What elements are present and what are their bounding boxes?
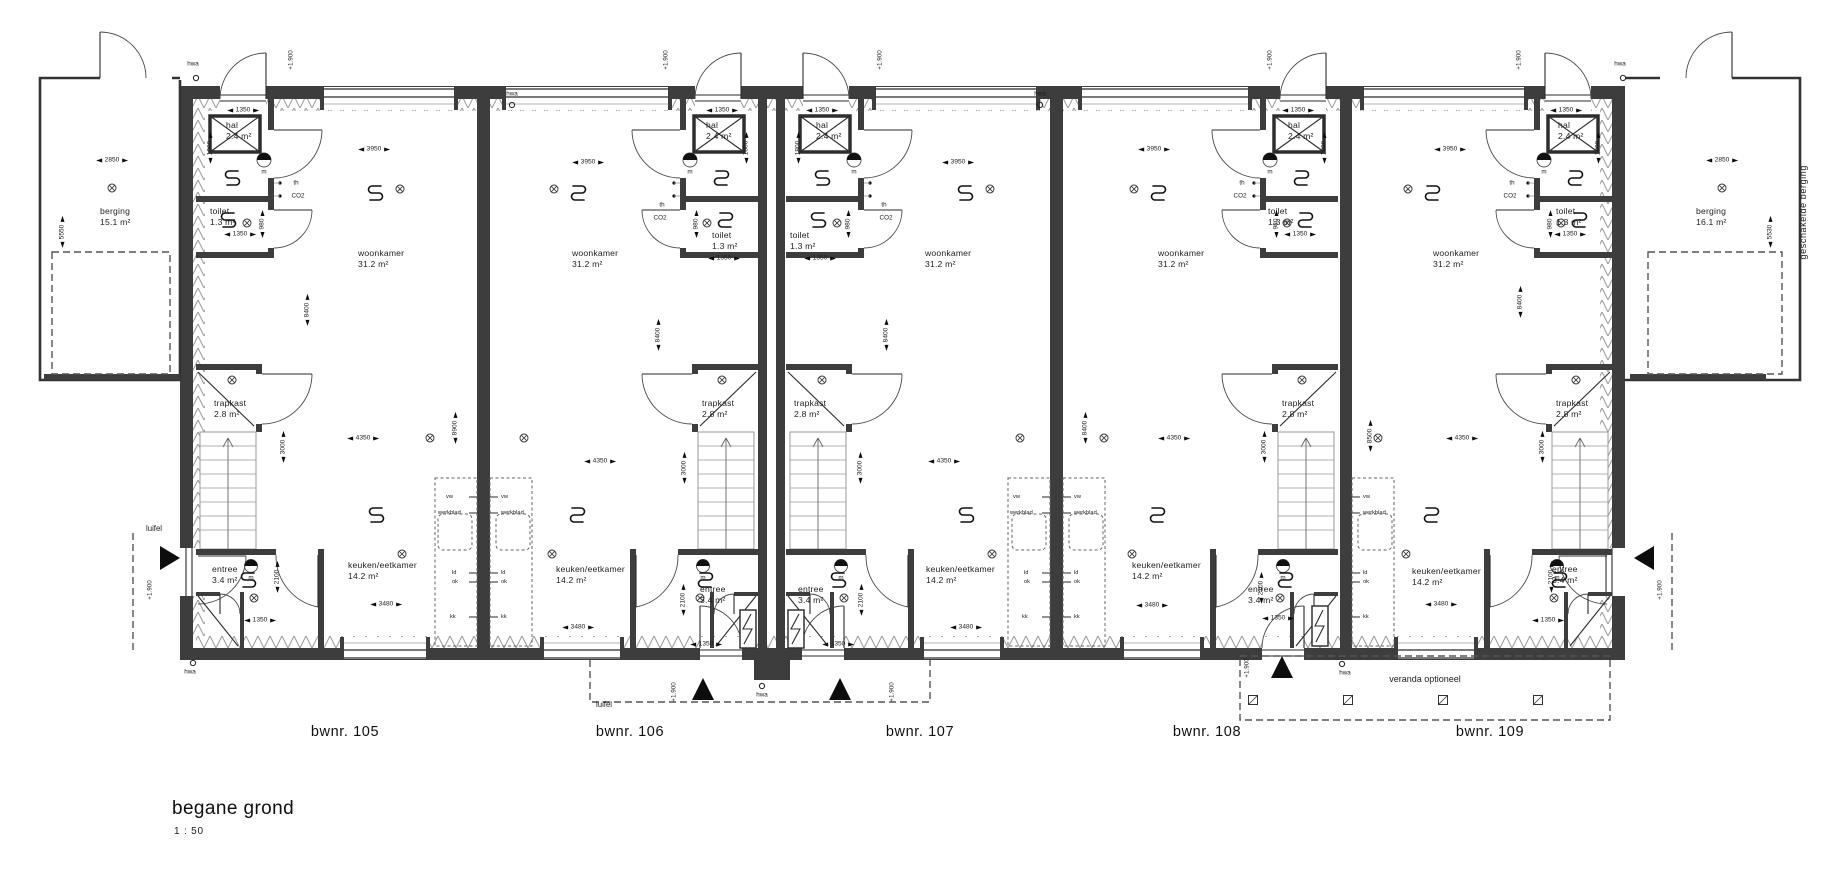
dim-value: 4350 — [593, 458, 608, 465]
room-area: 1.3 m² — [210, 217, 236, 228]
room-area: 15.1 m² — [100, 217, 131, 228]
kk-label: kk — [450, 614, 456, 620]
room-label-hal-106: hal2.4 m² — [706, 120, 732, 142]
dim-1350: 1350 — [1548, 107, 1584, 114]
dim-4350: 4350 — [582, 458, 618, 465]
dim-5550: 5550 — [59, 214, 66, 250]
dim-value: 8400 — [655, 328, 662, 343]
dim-3480: 3480 — [948, 624, 984, 631]
vw-label: vw — [446, 494, 453, 500]
room-name: woonkamer — [1433, 248, 1479, 259]
co2-label: CO2 — [1234, 193, 1247, 200]
dim-3480: 3480 — [1134, 602, 1170, 609]
room-area: 2.8 m² — [214, 409, 246, 420]
ok-label: ok — [1074, 579, 1080, 585]
dim-2100: 2100 — [858, 582, 865, 618]
dim-8400: 8400 — [1082, 410, 1089, 446]
room-area: 3.4 m² — [798, 595, 824, 606]
level-label: +1.900 — [663, 50, 670, 69]
dim-8900: 8900 — [452, 410, 459, 446]
geschakelde-berging-label: geschakelde berging — [1798, 165, 1808, 259]
dim-3950: 3950 — [1136, 146, 1172, 153]
room-label-woonkamer-109: woonkamer31.2 m² — [1433, 248, 1479, 270]
room-label-keuken-108: keuken/eetkamer14.2 m² — [1132, 560, 1201, 582]
room-area: 14.2 m² — [1132, 571, 1201, 582]
room-label-woonkamer-105: woonkamer31.2 m² — [358, 248, 404, 270]
dim-value: 1350 — [1563, 231, 1578, 238]
room-area: 16.1 m² — [1696, 217, 1727, 228]
bwnr-109-label: bwnr. 109 — [1456, 724, 1524, 740]
dim-980: 980 — [259, 208, 266, 240]
dim-value: 980 — [693, 218, 700, 229]
dim-1350: 1350 — [1260, 615, 1296, 622]
room-name: hal — [816, 120, 842, 131]
dim-value: 3950 — [1443, 146, 1458, 153]
kk-label: kk — [1363, 614, 1369, 620]
werkblad-label: werkblad — [501, 510, 524, 516]
dim-value: 980 — [1273, 218, 1280, 229]
dim-value: 1800 — [1321, 141, 1328, 156]
dim-8400: 8400 — [883, 317, 890, 353]
room-name: woonkamer — [1158, 248, 1204, 259]
dim-value: 8500 — [1367, 429, 1374, 444]
dim-1800: 1800 — [1321, 130, 1328, 166]
room-area: 31.2 m² — [358, 259, 404, 270]
room-label-keuken-109: keuken/eetkamer14.2 m² — [1412, 566, 1481, 588]
dim-1350: 1350 — [1552, 231, 1588, 238]
dim-value: 4350 — [1455, 435, 1470, 442]
dim-2100: 2100 — [680, 582, 687, 618]
dim-8400: 8400 — [1517, 284, 1524, 320]
hwa-label: hwa — [1339, 670, 1351, 677]
dim-1350: 1350 — [1282, 231, 1318, 238]
dim-1350: 1350 — [802, 255, 838, 262]
bwnr-105-label: bwnr. 105 — [311, 724, 379, 740]
room-label-hal-109: hal2.4 m² — [1558, 120, 1584, 142]
dim-value: 8400 — [304, 303, 311, 318]
dim-value: 2850 — [105, 157, 120, 164]
dim-value: 3000 — [681, 461, 688, 476]
dim-3000: 3000 — [280, 429, 287, 465]
dim-3950: 3950 — [940, 159, 976, 166]
dim-2850: 2850 — [1704, 157, 1740, 164]
room-label-trapkast-108: trapkast2.8 m² — [1282, 398, 1314, 420]
dim-value: 5550 — [59, 225, 66, 240]
ok-label: ok — [1024, 579, 1030, 585]
dim-4350: 4350 — [926, 458, 962, 465]
room-name: hal — [226, 120, 252, 131]
dim-2100: 2100 — [274, 559, 281, 595]
room-name: keuken/eetkamer — [556, 564, 625, 575]
dim-value: 5530 — [1767, 225, 1774, 240]
werkblad-label: werkblad — [1363, 510, 1386, 516]
level-label: +1.900 — [1657, 580, 1664, 599]
meter-label: m — [1280, 575, 1285, 582]
dim-value: 1350 — [1293, 231, 1308, 238]
room-label-trapkast-105: trapkast2.8 m² — [214, 398, 246, 420]
dim-value: 1350 — [253, 617, 268, 624]
room-name: trapkast — [1556, 398, 1588, 409]
luifel-label: luifel — [146, 524, 162, 533]
dim-value: 3000 — [280, 440, 287, 455]
dim-value: 1350 — [715, 107, 730, 114]
dim-8500: 8500 — [1367, 418, 1374, 454]
ok-label: ok — [501, 579, 507, 585]
hwa-label: hwa — [506, 91, 518, 98]
room-area: 31.2 m² — [1433, 259, 1479, 270]
dim-value: 3480 — [379, 601, 394, 608]
room-area: 14.2 m² — [926, 575, 995, 586]
room-area: 1.3 m² — [790, 241, 816, 252]
dim-2850: 2850 — [94, 157, 130, 164]
dim-4350: 4350 — [1444, 435, 1480, 442]
dim-1350: 1350 — [1530, 617, 1566, 624]
dim-value: 3950 — [951, 159, 966, 166]
luifel-label: luifel — [596, 700, 612, 709]
kk-label: kk — [1074, 614, 1080, 620]
dim-1800: 1800 — [207, 130, 214, 166]
room-area: 31.2 m² — [1158, 259, 1204, 270]
dim-value: 980 — [259, 218, 266, 229]
co2-label: CO2 — [654, 215, 667, 222]
level-label: +1.900 — [1244, 658, 1251, 677]
room-name: trapkast — [1282, 398, 1314, 409]
hwa-label: hwa — [1034, 91, 1046, 98]
dim-value: 3950 — [367, 146, 382, 153]
room-area: 31.2 m² — [925, 259, 971, 270]
dim-5530: 5530 — [1767, 214, 1774, 250]
dim-3950: 3950 — [356, 146, 392, 153]
dim-3480: 3480 — [1423, 601, 1459, 608]
hwa-label: hwa — [184, 669, 196, 676]
veranda-outline — [1240, 656, 1610, 720]
room-name: toilet — [210, 206, 236, 217]
room-name: entree — [798, 584, 824, 595]
room-name: toilet — [1556, 206, 1582, 217]
th-label: th — [1239, 180, 1244, 187]
dim-1350: 1350 — [1280, 107, 1316, 114]
room-name: berging — [100, 206, 131, 217]
dim-3950: 3950 — [1432, 146, 1468, 153]
dim-value: 2100 — [1258, 581, 1265, 596]
dim-value: 1350 — [1291, 107, 1306, 114]
dim-980: 980 — [1273, 208, 1280, 240]
dim-value: 2100 — [274, 570, 281, 585]
dim-3000: 3000 — [681, 450, 688, 486]
ld-label: ld — [501, 570, 505, 576]
room-name: berging — [1696, 206, 1727, 217]
dim-1350: 1350 — [804, 107, 840, 114]
room-name: toilet — [712, 230, 738, 241]
dim-value: 980 — [845, 218, 852, 229]
meter-label: m — [687, 169, 692, 176]
room-name: keuken/eetkamer — [926, 564, 995, 575]
floorplan-sheet: .w{fill:#3d3d3d} .ln{stroke:#2b2b2b;stro… — [0, 0, 1838, 871]
ld-label: ld — [452, 570, 456, 576]
room-area: 14.2 m² — [348, 571, 417, 582]
room-area: 2.4 m² — [706, 131, 732, 142]
dim-1350: 1350 — [704, 107, 740, 114]
dim-1350: 1350 — [242, 617, 278, 624]
dim-1800: 1800 — [1595, 130, 1602, 166]
level-label: +1.900 — [877, 50, 884, 69]
dim-value: 4350 — [356, 435, 371, 442]
kk-label: kk — [501, 614, 507, 620]
room-name: keuken/eetkamer — [348, 560, 417, 571]
dim-value: 2100 — [680, 593, 687, 608]
dim-value: 1350 — [815, 107, 830, 114]
room-label-trapkast-106: trapkast2.8 m² — [702, 398, 734, 420]
dim-1350: 1350 — [222, 231, 258, 238]
meter-label: m — [851, 169, 856, 176]
dim-value: 3950 — [1147, 146, 1162, 153]
scale-label: 1 : 50 — [174, 826, 204, 837]
page-title: begane grond — [172, 798, 294, 820]
bwnr-108-label: bwnr. 108 — [1173, 724, 1241, 740]
room-name: entree — [212, 564, 238, 575]
level-label: +1.900 — [889, 682, 896, 701]
dim-value: 2850 — [1715, 157, 1730, 164]
room-area: 3.4 m² — [212, 575, 238, 586]
dim-value: 1350 — [236, 107, 251, 114]
dim-value: 1350 — [717, 255, 732, 262]
dim-1350: 1350 — [706, 255, 742, 262]
dim-980: 980 — [693, 208, 700, 240]
room-name: woonkamer — [358, 248, 404, 259]
dim-1350: 1350 — [225, 107, 261, 114]
room-label-entree-106: entree3.4 m² — [700, 584, 726, 606]
party-walls — [477, 99, 1352, 680]
meter-label: m — [1267, 169, 1272, 176]
vw-label: vw — [1013, 494, 1020, 500]
room-label-toilet-107: toilet1.3 m² — [790, 230, 816, 252]
dim-value: 1350 — [1541, 617, 1556, 624]
dim-value: 1800 — [795, 141, 802, 156]
room-label-keuken-105: keuken/eetkamer14.2 m² — [348, 560, 417, 582]
dim-value: 1350 — [233, 231, 248, 238]
th-label: th — [659, 202, 664, 209]
dim-value: 1350 — [831, 641, 846, 648]
dim-3480: 3480 — [368, 601, 404, 608]
meter-label: m — [1541, 169, 1546, 176]
dim-value: 1800 — [207, 141, 214, 156]
dim-value: 1350 — [813, 255, 828, 262]
vw-label: vw — [1363, 494, 1370, 500]
hwa-label: hwa — [1614, 61, 1626, 68]
room-area: 1.3 m² — [1556, 217, 1582, 228]
room-area: 2.8 m² — [1282, 409, 1314, 420]
room-area: 14.2 m² — [1412, 577, 1481, 588]
room-area: 2.8 m² — [794, 409, 826, 420]
hwa-label: hwa — [187, 61, 199, 68]
dim-value: 3480 — [1434, 601, 1449, 608]
co2-label: CO2 — [880, 215, 893, 222]
room-area: 2.8 m² — [702, 409, 734, 420]
room-label-woonkamer-106: woonkamer31.2 m² — [572, 248, 618, 270]
th-label: th — [293, 180, 298, 187]
room-label-entree-105: entree3.4 m² — [212, 564, 238, 586]
room-label-woonkamer-107: woonkamer31.2 m² — [925, 248, 971, 270]
hwa-label: hwa — [756, 692, 768, 699]
dim-8400: 8400 — [655, 317, 662, 353]
dim-980: 980 — [845, 208, 852, 240]
room-label-hal-107: hal2.4 m² — [816, 120, 842, 142]
room-name: hal — [706, 120, 732, 131]
ld-label: ld — [1074, 570, 1078, 576]
dim-value: 2100 — [858, 593, 865, 608]
dim-3950: 3950 — [570, 159, 606, 166]
dim-value: 1350 — [1559, 107, 1574, 114]
room-name: woonkamer — [572, 248, 618, 259]
room-name: trapkast — [214, 398, 246, 409]
dim-3000: 3000 — [857, 450, 864, 486]
dim-value: 980 — [1547, 218, 1554, 229]
room-name: hal — [1288, 120, 1314, 131]
dim-value: 3950 — [581, 159, 596, 166]
ok-label: ok — [1363, 579, 1369, 585]
vw-label: vw — [1074, 494, 1081, 500]
room-area: 2.4 m² — [1558, 131, 1584, 142]
meter-label: m — [838, 575, 843, 582]
room-area: 3.4 m² — [700, 595, 726, 606]
room-area: 2.4 m² — [226, 131, 252, 142]
room-label-keuken-106: keuken/eetkamer14.2 m² — [556, 564, 625, 586]
meter-label: m — [700, 575, 705, 582]
room-area: 14.2 m² — [556, 575, 625, 586]
level-label: +1.900 — [288, 50, 295, 69]
room-area: 2.4 m² — [816, 131, 842, 142]
room-label-hal-105: hal2.4 m² — [226, 120, 252, 142]
dim-2100: 2100 — [1258, 570, 1265, 606]
co2-label: CO2 — [1504, 193, 1517, 200]
vw-label: vw — [501, 494, 508, 500]
veranda-label: veranda optioneel — [1389, 674, 1461, 684]
room-label-toilet-109: toilet1.3 m² — [1556, 206, 1582, 228]
dim-1800: 1800 — [795, 130, 802, 166]
room-area: 2.8 m² — [1556, 409, 1588, 420]
meter-label: m — [261, 169, 266, 176]
werkblad-label: werkblad — [438, 510, 461, 516]
werkblad-label: werkblad — [1010, 510, 1033, 516]
room-label-toilet-105: toilet1.3 m² — [210, 206, 236, 228]
co2-label: CO2 — [292, 193, 305, 200]
room-name: trapkast — [702, 398, 734, 409]
room-area: 31.2 m² — [572, 259, 618, 270]
th-label: th — [881, 202, 886, 209]
ld-label: ld — [1363, 570, 1367, 576]
dim-value: 3000 — [857, 461, 864, 476]
room-name: keuken/eetkamer — [1132, 560, 1201, 571]
room-area: 1.3 m² — [712, 241, 738, 252]
room-label-berging-rechts: berging16.1 m² — [1696, 206, 1727, 228]
dim-3000: 3000 — [1261, 429, 1268, 465]
room-name: hal — [1558, 120, 1584, 131]
ok-label: ok — [452, 579, 458, 585]
dim-value: 8400 — [1517, 295, 1524, 310]
dim-value: 1350 — [1271, 615, 1286, 622]
room-label-trapkast-107: trapkast2.8 m² — [794, 398, 826, 420]
dim-8400: 8400 — [304, 292, 311, 328]
dim-value: 1350 — [699, 641, 714, 648]
room-label-keuken-107: keuken/eetkamer14.2 m² — [926, 564, 995, 586]
dim-value: 8400 — [1082, 421, 1089, 436]
bwnr-106-label: bwnr. 106 — [596, 724, 664, 740]
room-name: keuken/eetkamer — [1412, 566, 1481, 577]
dim-value: 4350 — [1167, 435, 1182, 442]
room-name: entree — [700, 584, 726, 595]
room-name: entree — [1552, 564, 1578, 575]
room-name: woonkamer — [925, 248, 971, 259]
dim-value: 3480 — [1145, 602, 1160, 609]
dim-3000: 3000 — [1539, 429, 1546, 465]
room-label-berging-links: berging15.1 m² — [100, 206, 131, 228]
dim-1800: 1800 — [743, 130, 750, 166]
room-label-entree-107: entree3.4 m² — [798, 584, 824, 606]
room-label-toilet-106: toilet1.3 m² — [712, 230, 738, 252]
room-label-hal-108: hal2.4 m² — [1288, 120, 1314, 142]
kitchen-counters — [435, 478, 1394, 646]
dim-value: 3480 — [959, 624, 974, 631]
room-label-woonkamer-108: woonkamer31.2 m² — [1158, 248, 1204, 270]
dim-value: 4350 — [937, 458, 952, 465]
dim-value: 3000 — [1539, 440, 1546, 455]
dim-3480: 3480 — [560, 624, 596, 631]
bwnr-107-label: bwnr. 107 — [886, 724, 954, 740]
dim-value: 3000 — [1261, 440, 1268, 455]
ld-label: ld — [1024, 570, 1028, 576]
dim-value: 1800 — [743, 141, 750, 156]
dim-value: 8400 — [883, 328, 890, 343]
room-label-trapkast-109: trapkast2.8 m² — [1556, 398, 1588, 420]
dim-value: 8900 — [452, 421, 459, 436]
kk-label: kk — [1022, 614, 1028, 620]
dim-1350: 1350 — [688, 641, 724, 648]
th-label: th — [1509, 180, 1514, 187]
dim-1350: 1350 — [820, 641, 856, 648]
level-label: +1.900 — [147, 580, 154, 599]
werkblad-label: werkblad — [1074, 510, 1097, 516]
dim-4350: 4350 — [345, 435, 381, 442]
room-name: trapkast — [794, 398, 826, 409]
level-label: +1.900 — [1267, 50, 1274, 69]
level-label: +1.900 — [1516, 50, 1523, 69]
room-area: 2.4 m² — [1288, 131, 1314, 142]
meter-label: m — [1554, 575, 1559, 582]
meter-label: m — [248, 575, 253, 582]
dim-value: 3480 — [571, 624, 586, 631]
level-label: +1.900 — [671, 682, 678, 701]
dim-value: 1800 — [1595, 141, 1602, 156]
dim-4350: 4350 — [1156, 435, 1192, 442]
room-name: toilet — [790, 230, 816, 241]
